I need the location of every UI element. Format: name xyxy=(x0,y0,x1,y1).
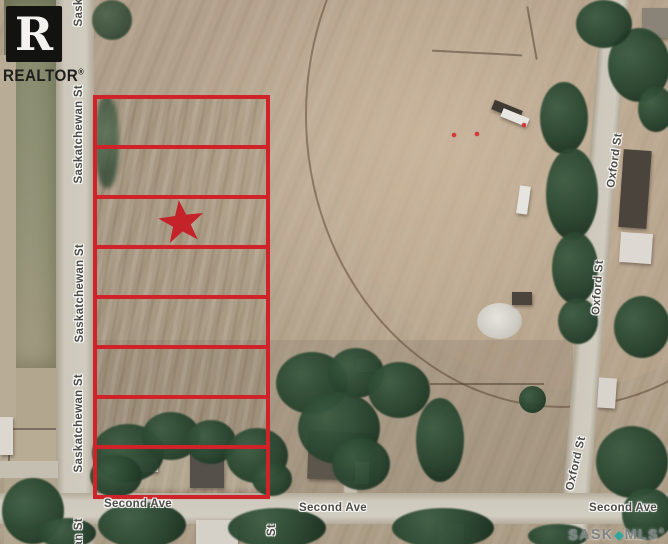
tree-cluster xyxy=(638,86,668,132)
realtor-logo-block: R xyxy=(6,6,62,62)
street-label-saskatchewan-st: Saskatchewan St xyxy=(73,85,85,183)
outbuilding xyxy=(512,292,532,305)
map-marker-dot-3 xyxy=(522,123,526,127)
tree-cluster xyxy=(392,508,494,544)
tree-cluster xyxy=(540,82,588,154)
registered-symbol: ® xyxy=(78,68,84,77)
street-label-saskatchewan-st: Saskatchewan St xyxy=(74,244,86,342)
barn-roof xyxy=(0,417,13,455)
parcel-lot-7 xyxy=(93,395,270,449)
tree-cluster xyxy=(92,0,132,40)
realtor-wordmark-text: REALTOR xyxy=(3,67,78,85)
aerial-listing-map: Saskatchewan St Saskatchewan St Saskatch… xyxy=(0,0,668,544)
street-label-second-ave: Second Ave xyxy=(589,502,657,514)
realtor-logo: R REALTOR® xyxy=(6,6,91,86)
parcel-lots xyxy=(93,95,270,499)
mls-diamond-icon: ◆ xyxy=(614,528,623,542)
house-roof xyxy=(618,149,651,229)
tree-cluster xyxy=(332,438,390,490)
tree-cluster xyxy=(38,518,96,544)
featured-lot-star-icon xyxy=(155,197,207,247)
street-label-saskatchewan-st: Saskatchewan St xyxy=(73,518,85,544)
sask-mls-watermark: SASK◆MLS® xyxy=(568,527,664,543)
tree-cluster xyxy=(596,426,668,498)
bush xyxy=(519,386,546,413)
tree-cluster xyxy=(576,0,632,48)
watermark-mls-text: MLS xyxy=(625,527,659,543)
driveway xyxy=(0,461,58,478)
watermark-sask-text: SASK xyxy=(568,527,613,543)
tree-cluster xyxy=(368,362,430,418)
parcel-lot-5 xyxy=(93,295,270,349)
tree-cluster xyxy=(614,296,668,358)
house-roof xyxy=(619,232,653,264)
tree-cluster xyxy=(546,148,598,240)
street-label-second-ave: Second Ave xyxy=(104,498,172,510)
street-label-partial-st: St xyxy=(266,524,278,536)
parcel-lot-8 xyxy=(93,445,270,499)
map-marker-dot-2 xyxy=(475,132,479,136)
pond xyxy=(477,303,522,339)
parcel-lot-3 xyxy=(93,195,270,249)
realtor-r-icon: R xyxy=(15,11,53,57)
street-label-second-ave: Second Ave xyxy=(299,502,367,514)
parcel-lot-6 xyxy=(93,345,270,399)
parcel-lot-1 xyxy=(93,95,270,149)
realtor-wordmark: REALTOR® xyxy=(3,67,84,86)
shed-roof xyxy=(597,377,617,408)
parcel-lot-4 xyxy=(93,245,270,299)
map-marker-dot-1 xyxy=(452,133,456,137)
fence-line xyxy=(430,383,544,385)
dirt-track xyxy=(0,55,16,475)
tree-cluster xyxy=(416,398,464,482)
parcel-lot-2 xyxy=(93,145,270,199)
street-label-saskatchewan-st: Saskatchewan St xyxy=(73,374,85,472)
registered-symbol: ® xyxy=(659,528,664,535)
